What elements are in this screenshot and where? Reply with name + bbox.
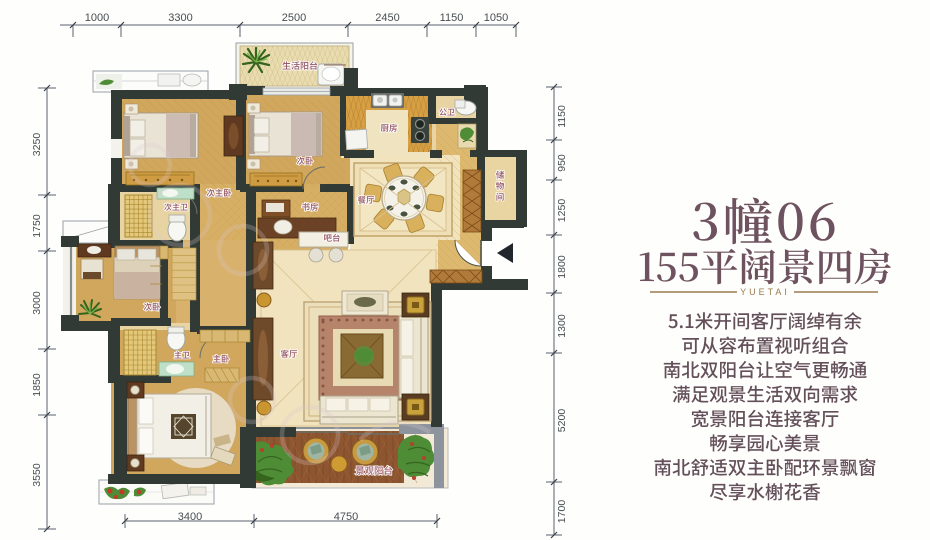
- svg-text:4750: 4750: [334, 511, 358, 523]
- svg-text:1800: 1800: [556, 255, 568, 279]
- svg-text:5200: 5200: [556, 409, 568, 433]
- svg-text:3250: 3250: [31, 133, 43, 157]
- svg-text:1150: 1150: [440, 12, 464, 24]
- svg-text:3000: 3000: [31, 291, 43, 315]
- svg-text:1250: 1250: [556, 199, 568, 223]
- svg-text:950: 950: [556, 154, 568, 172]
- svg-text:1050: 1050: [484, 12, 508, 24]
- svg-text:1150: 1150: [556, 105, 568, 128]
- svg-text:1700: 1700: [556, 500, 568, 524]
- svg-text:1850: 1850: [31, 373, 43, 397]
- svg-text:2450: 2450: [375, 12, 399, 24]
- svg-text:3550: 3550: [31, 463, 43, 487]
- svg-text:2500: 2500: [282, 12, 306, 24]
- svg-text:1750: 1750: [31, 214, 43, 238]
- svg-text:1300: 1300: [556, 314, 568, 338]
- svg-text:3300: 3300: [168, 12, 192, 24]
- svg-text:1000: 1000: [85, 12, 109, 24]
- svg-text:3400: 3400: [178, 511, 202, 523]
- svg-text:YUETAI: YUETAI: [740, 287, 790, 297]
